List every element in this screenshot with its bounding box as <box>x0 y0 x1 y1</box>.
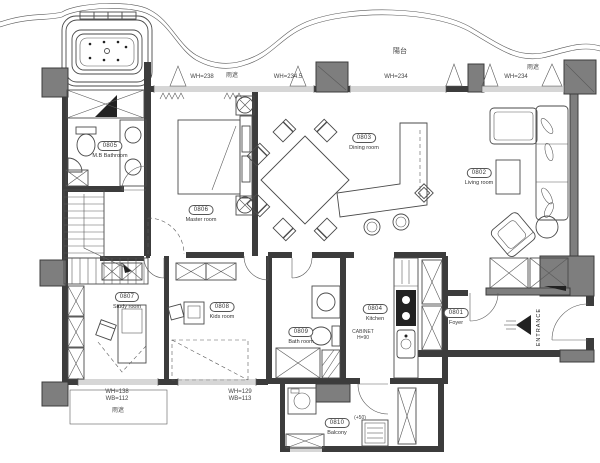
room-name: M.B Bathroom <box>92 153 127 160</box>
room-id-badge: 0805 <box>98 141 123 151</box>
room-id-badge: 0801 <box>444 308 469 318</box>
window-sill: WB=113 <box>228 396 252 403</box>
window-label-1: WH=238 <box>190 74 214 81</box>
room-name: Kids room <box>210 314 235 321</box>
floor-level-note: (+50) <box>354 416 366 422</box>
room-name: Living room <box>465 180 493 187</box>
room-id-badge: 0804 <box>363 304 388 314</box>
room-name: Kitchen <box>363 316 388 323</box>
walls <box>62 62 594 452</box>
balcony-annotation: 陽台 <box>393 46 407 56</box>
room-id-badge: 0807 <box>115 292 140 302</box>
window-height: WH=129 <box>228 389 252 396</box>
room-name: Balcony <box>325 430 350 437</box>
floor-plan-drawing <box>0 0 600 463</box>
rain-cover-left-annotation: 雨遮 <box>226 70 238 79</box>
rain-cover-right-annotation: 雨遮 <box>527 62 539 71</box>
staircase <box>64 190 148 284</box>
kitchen-fixtures <box>394 258 442 378</box>
room-name: Study room <box>113 304 141 311</box>
room-label-foyer: 0801 Foyer <box>444 301 469 327</box>
room-label-kitchen: 0804 Kitchen <box>363 297 388 323</box>
room-name: Master room <box>186 217 217 224</box>
rain-cover-bottom-annotation: 雨遮 <box>112 405 124 414</box>
entrance-arrow-icon <box>504 315 531 335</box>
room-id-badge: 0803 <box>352 133 377 143</box>
room-name: Dining room <box>349 145 379 152</box>
kids-room-furniture <box>168 263 248 380</box>
room-id-badge: 0809 <box>289 327 314 337</box>
room-id-badge: 0806 <box>189 205 214 215</box>
room-label-kids-room: 0808 Kids room <box>210 295 235 321</box>
room-label-master-room: 0806 Master room <box>186 198 217 224</box>
cabinet-note: CABINET H=90 <box>352 330 374 341</box>
cabinet-note-line2: H=90 <box>352 336 374 342</box>
room-name: Bath room <box>288 339 313 346</box>
room-id-badge: 0810 <box>325 418 350 428</box>
room-name: Foyer <box>444 320 469 327</box>
window-label-5: WH=138 WB=112 <box>105 389 129 402</box>
bathtub <box>62 12 152 86</box>
window-height: WH=138 <box>105 389 129 396</box>
room-label-bath-room: 0809 Bath room <box>288 320 313 346</box>
room-id-badge: 0808 <box>210 302 235 312</box>
window-sill: WB=112 <box>105 396 129 403</box>
room-label-balcony-utility: 0810 Balcony <box>325 411 350 437</box>
room-label-dining-room: 0803 Dining room <box>349 126 379 152</box>
entrance-label: ENTRANCE <box>536 308 542 346</box>
room-label-mb-bathroom: 0805 M.B Bathroom <box>92 134 127 160</box>
dining-furniture <box>247 119 349 240</box>
window-label-6: WH=129 WB=113 <box>228 389 252 402</box>
room-label-study-room: 0807 Study room <box>113 285 141 311</box>
window-label-3: WH=234 <box>384 74 408 81</box>
window-label-4: WH=234 <box>504 74 528 81</box>
room-label-living-room: 0802 Living room <box>465 161 493 187</box>
utility-balcony-fixtures <box>286 388 416 448</box>
window-label-2: WH=234.5 <box>274 74 303 81</box>
room-id-badge: 0802 <box>467 168 492 178</box>
floor-plan: 0801 Foyer 0802 Living room 0803 Dining … <box>0 0 600 463</box>
